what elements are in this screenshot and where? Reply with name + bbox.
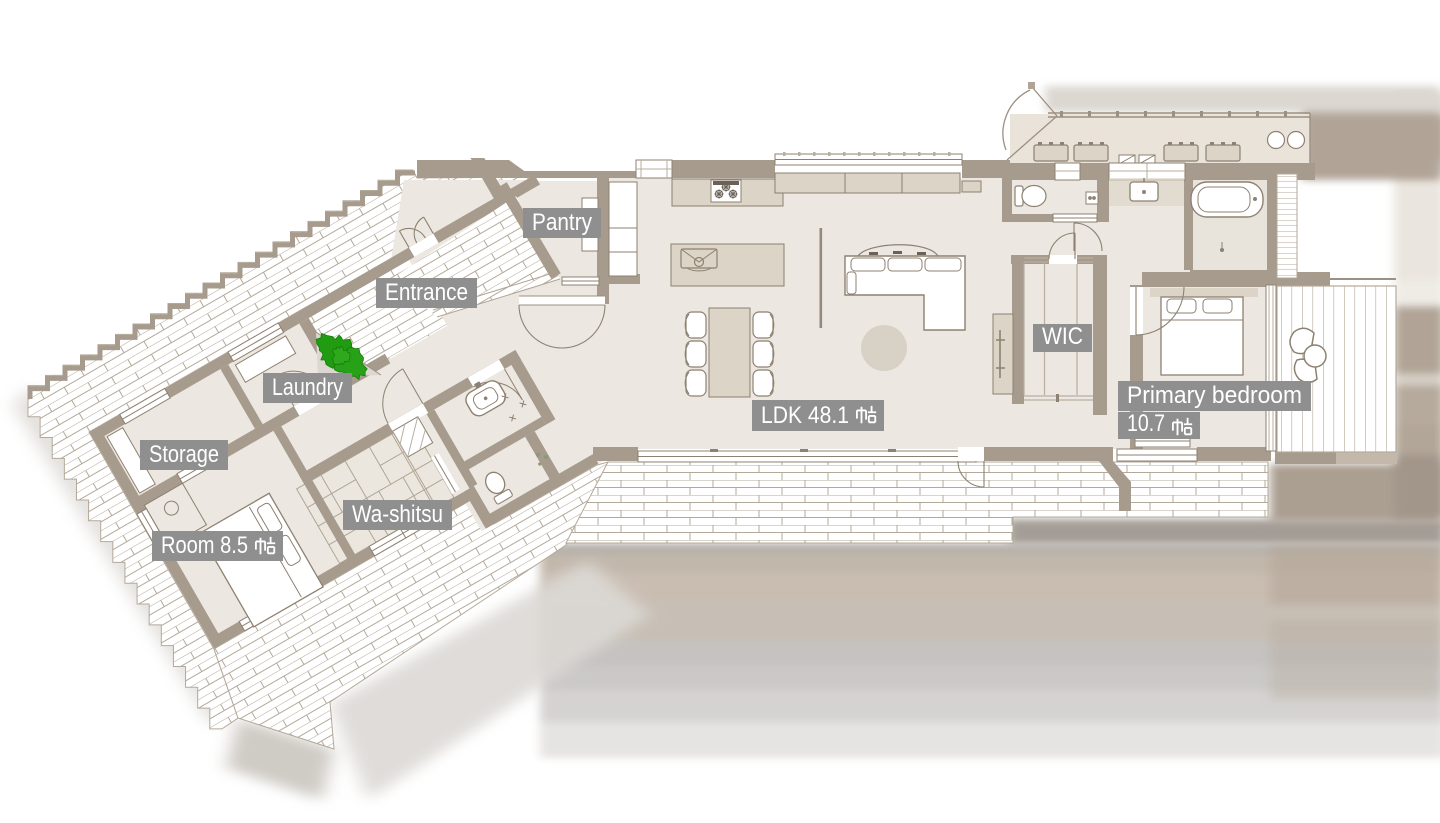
svg-text:Entrance: Entrance bbox=[385, 279, 468, 306]
svg-text:Storage: Storage bbox=[149, 441, 219, 468]
svg-text:Laundry: Laundry bbox=[272, 374, 343, 401]
svg-text:Wa-shitsu: Wa-shitsu bbox=[352, 501, 443, 528]
svg-text:Room 8.5: Room 8.5 bbox=[161, 532, 248, 559]
svg-text:10.7: 10.7 bbox=[1127, 410, 1165, 437]
svg-text:Pantry: Pantry bbox=[532, 209, 592, 236]
svg-text:Primary bedroom: Primary bedroom bbox=[1127, 382, 1302, 409]
svg-text:LDK 48.1: LDK 48.1 bbox=[761, 402, 849, 429]
svg-text:WIC: WIC bbox=[1042, 323, 1083, 350]
